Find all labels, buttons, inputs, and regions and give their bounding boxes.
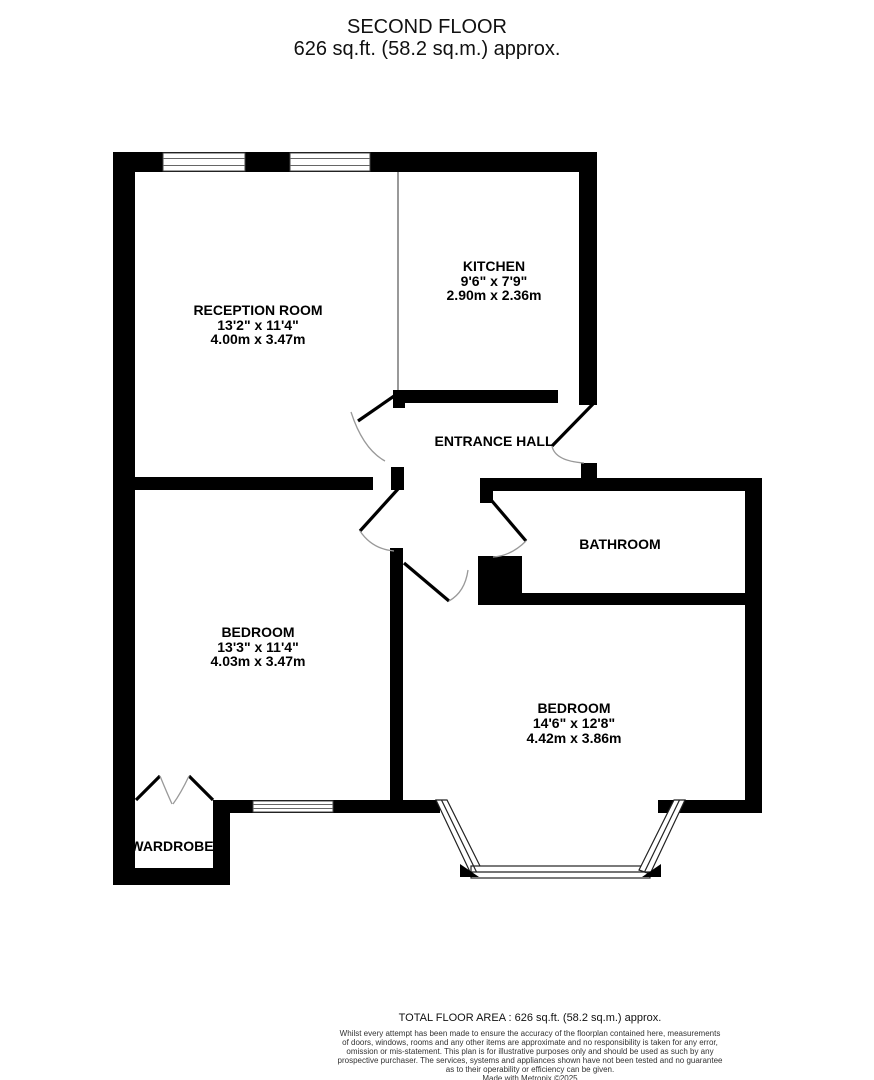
disclaimer-line-1: Whilst every attempt has been made to en… <box>320 1029 740 1038</box>
room-label-bedroom-front: BEDROOM <box>221 624 294 640</box>
walls <box>113 152 762 885</box>
door-bathroom <box>486 494 526 557</box>
room-label-kitchen: KITCHEN <box>463 258 525 274</box>
window-top-2 <box>290 153 370 171</box>
wall-kitchen-bottom-tab <box>393 390 405 408</box>
wall-wardrobe-bottom <box>113 868 230 885</box>
door-wardrobe-double <box>136 776 213 804</box>
wall-bedroom-divider <box>390 548 403 813</box>
disclaimer-line-5: as to their operability or efficiency ca… <box>320 1065 740 1074</box>
room-label-reception: RECEPTION ROOM <box>193 302 322 318</box>
wall-reception-bedroom <box>113 477 373 490</box>
wall-right <box>745 478 762 813</box>
door-entrance <box>552 404 593 463</box>
footer: TOTAL FLOOR AREA : 626 sq.ft. (58.2 sq.m… <box>320 1012 740 1080</box>
room-dims-m-kitchen: 2.90m x 2.36m <box>447 287 542 303</box>
room-label-wardrobe: WARDROBE <box>130 838 213 854</box>
floorplan-page: SECOND FLOOR 626 sq.ft. (58.2 sq.m.) app… <box>0 0 874 1080</box>
disclaimer-line-4: prospective purchaser. The services, sys… <box>320 1056 740 1065</box>
wall-reception-tab <box>391 467 404 490</box>
room-dims-m-bedroom-front: 4.03m x 3.47m <box>211 653 306 669</box>
door-bedroom2 <box>404 563 468 601</box>
wall-kitchen-right <box>579 152 597 405</box>
room-label-bedroom-rear: BEDROOM <box>537 700 610 716</box>
door-reception <box>351 394 397 461</box>
room-dims-ft-bedroom-rear: 14'6" x 12'8" <box>533 715 615 731</box>
room-label-entrance-hall: ENTRANCE HALL <box>435 433 554 449</box>
wall-bathroom-top-tab <box>581 463 597 478</box>
floorplan-canvas: RECEPTION ROOM 13'2" x 11'4" 4.00m x 3.4… <box>0 0 874 1080</box>
disclaimer-line-3: omission or mis-statement. This plan is … <box>320 1047 740 1056</box>
door-bedroom1 <box>360 489 398 551</box>
disclaimer-line-2: of doors, windows, rooms and any other i… <box>320 1038 740 1047</box>
wall-bathroom-top <box>480 478 760 491</box>
room-dims-m-reception: 4.00m x 3.47m <box>211 331 306 347</box>
wall-left <box>113 152 135 885</box>
metropix-credit: Made with Metropix ©2025 <box>320 1074 740 1080</box>
wall-bathroom-bottom <box>478 593 760 605</box>
bay-window <box>436 800 685 878</box>
window-bedroom1-bottom <box>253 801 333 812</box>
total-floor-area: TOTAL FLOOR AREA : 626 sq.ft. (58.2 sq.m… <box>320 1012 740 1024</box>
room-label-bathroom: BATHROOM <box>579 536 660 552</box>
room-dims-m-bedroom-rear: 4.42m x 3.86m <box>527 730 622 746</box>
wall-kitchen-bottom <box>393 390 558 403</box>
window-top-1 <box>163 153 245 171</box>
